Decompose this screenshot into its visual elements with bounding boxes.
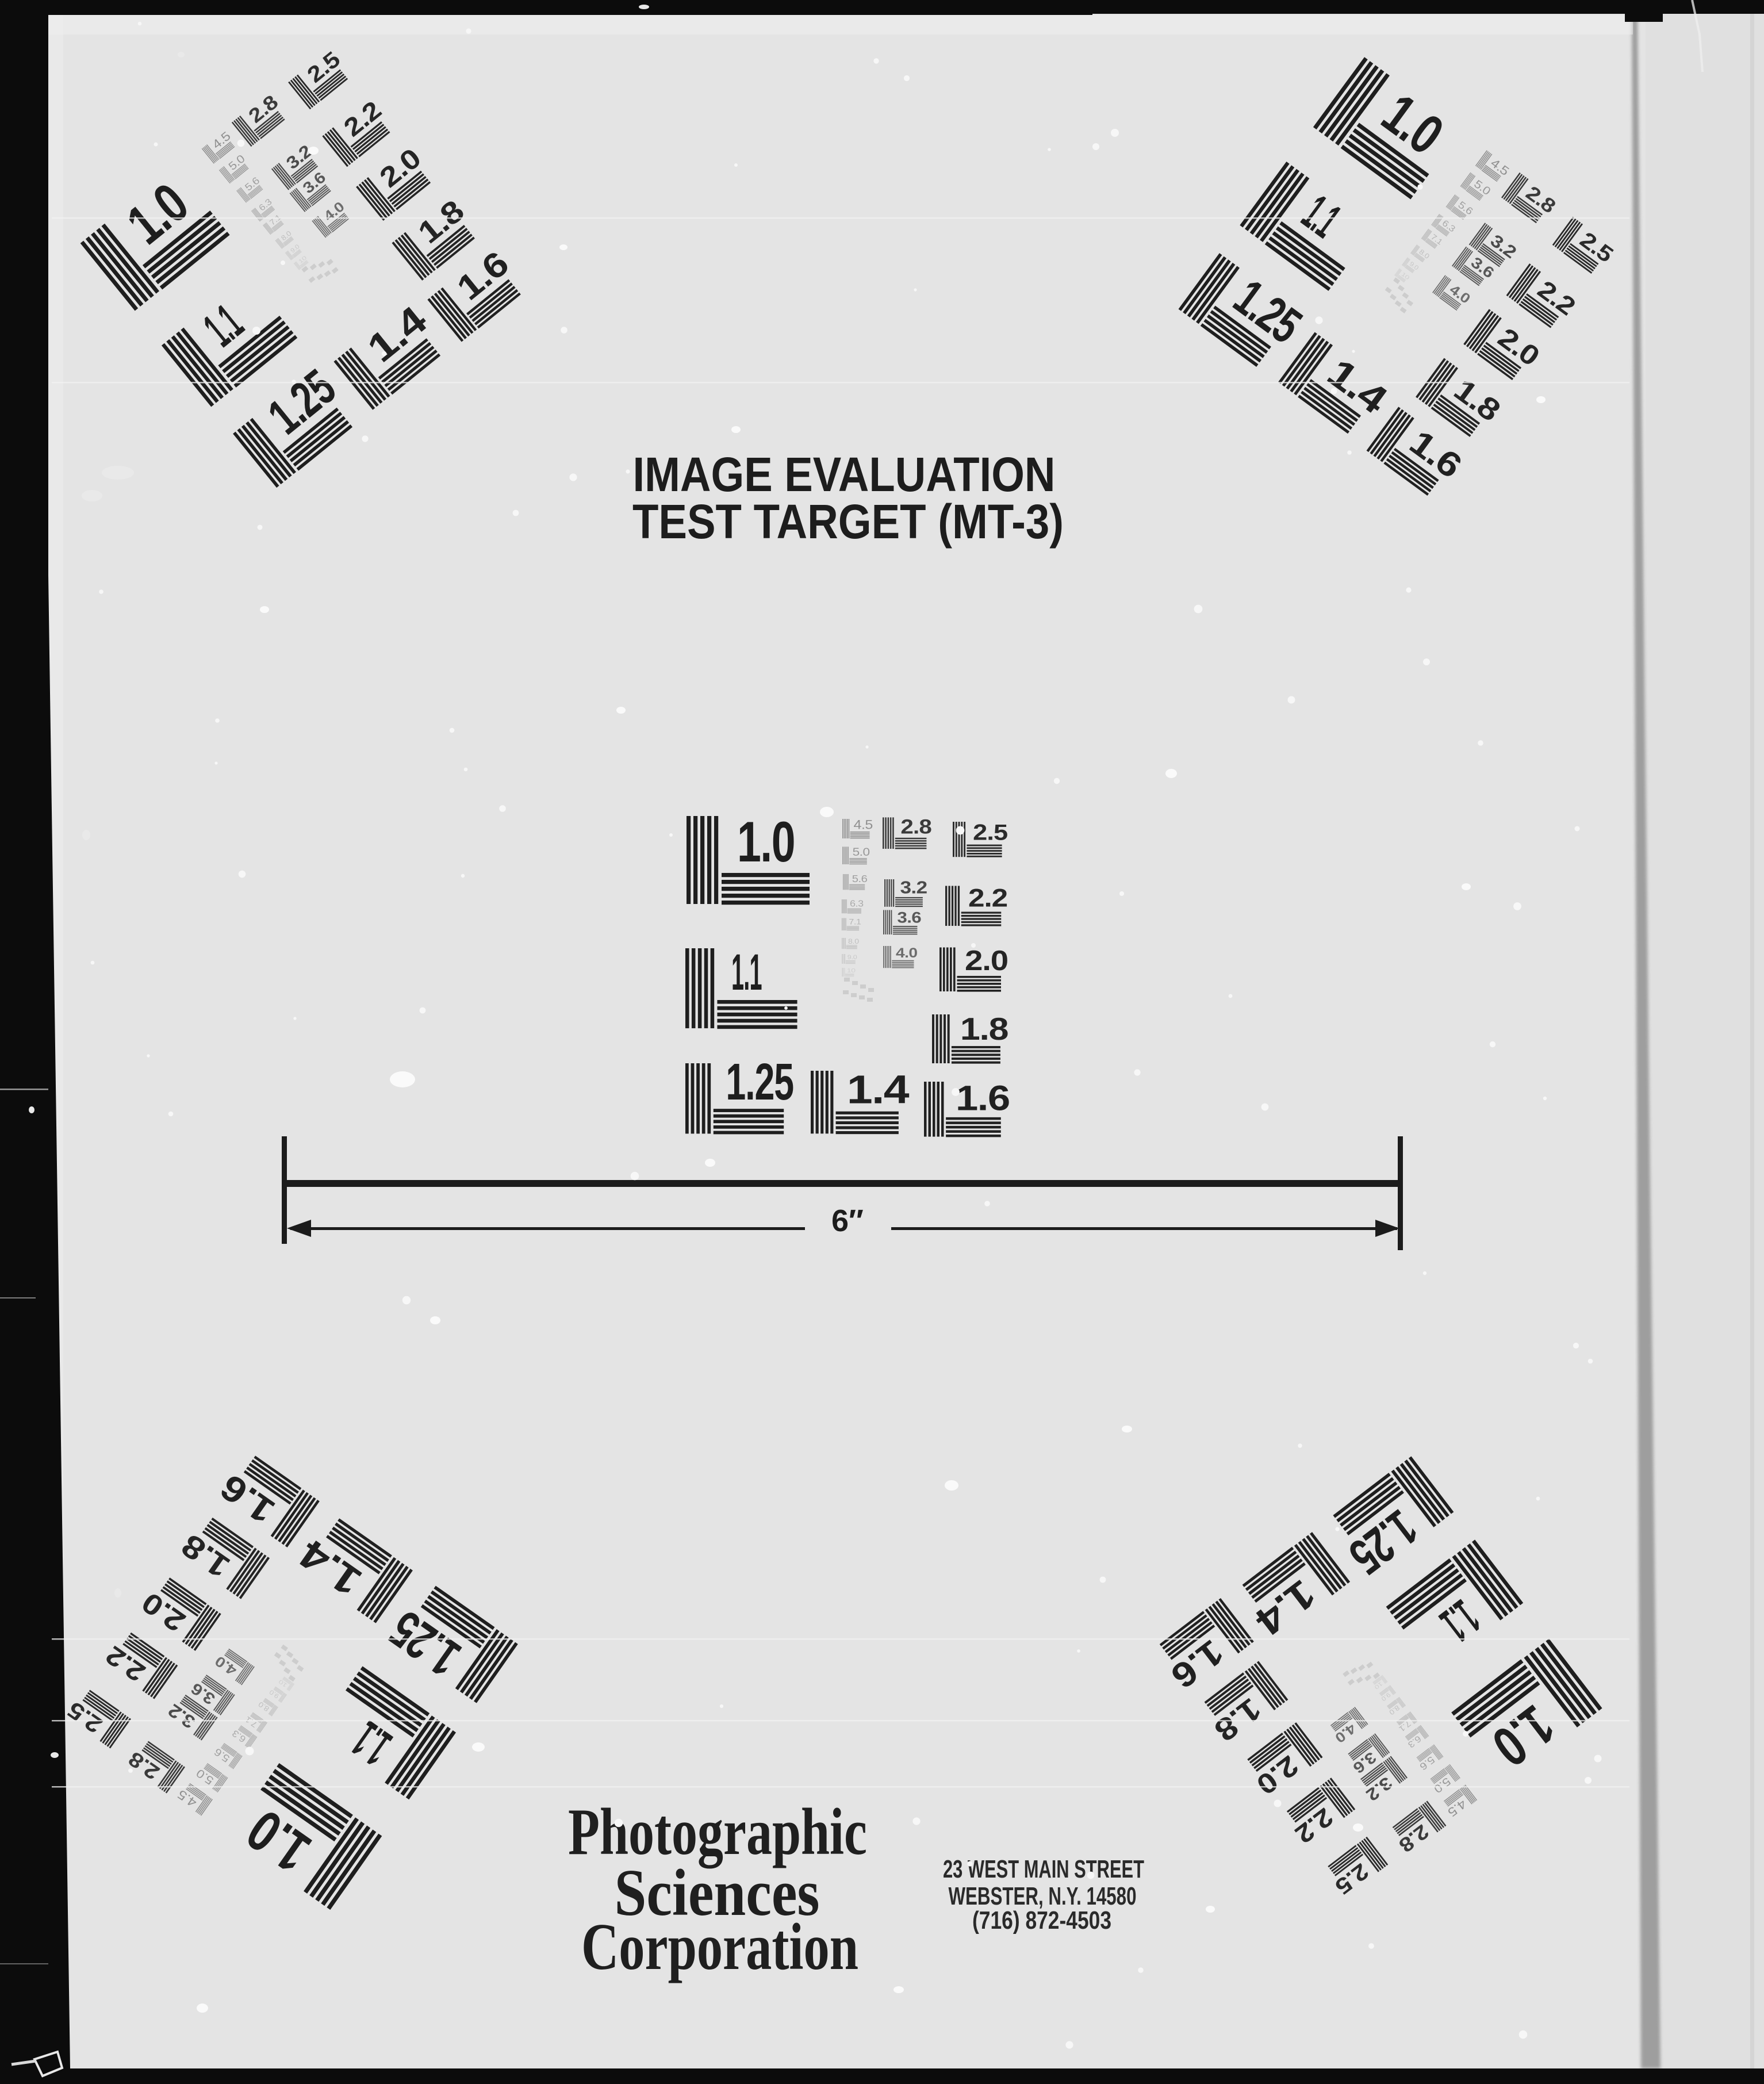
svg-text:2.2: 2.2 [968,884,1007,912]
svg-text:10: 10 [847,968,856,974]
svg-text:2.0: 2.0 [965,945,1008,976]
svg-text:6.3: 6.3 [850,899,864,909]
svg-text:4.5: 4.5 [854,818,873,832]
svg-text:2.8: 2.8 [900,816,931,838]
svg-text:1.0: 1.0 [737,810,795,874]
svg-text:(716) 872-4503: (716) 872-4503 [972,1906,1111,1934]
svg-text:Corporation: Corporation [581,1910,858,1984]
svg-text:1.1: 1.1 [731,943,762,1001]
svg-text:8.0: 8.0 [848,937,859,945]
svg-text:3.6: 3.6 [897,908,921,926]
svg-text:2.5: 2.5 [973,821,1007,845]
svg-text:5.6: 5.6 [852,873,868,884]
svg-text:IMAGE EVALUATION: IMAGE EVALUATION [633,447,1056,501]
svg-text:7.1: 7.1 [849,918,861,926]
svg-text:6″: 6″ [831,1204,864,1238]
svg-text:1.8: 1.8 [960,1012,1008,1047]
svg-text:4.0: 4.0 [896,945,918,961]
svg-text:1.25: 1.25 [726,1053,793,1110]
svg-text:3.2: 3.2 [900,878,927,898]
svg-text:23 WEST MAIN STREET: 23 WEST MAIN STREET [943,1855,1144,1883]
svg-text:5.0: 5.0 [853,846,871,859]
svg-text:TEST TARGET (MT-3): TEST TARGET (MT-3) [632,495,1064,549]
svg-text:1.4: 1.4 [847,1067,910,1112]
svg-text:1.6: 1.6 [956,1078,1010,1117]
svg-text:9.0: 9.0 [848,954,857,961]
